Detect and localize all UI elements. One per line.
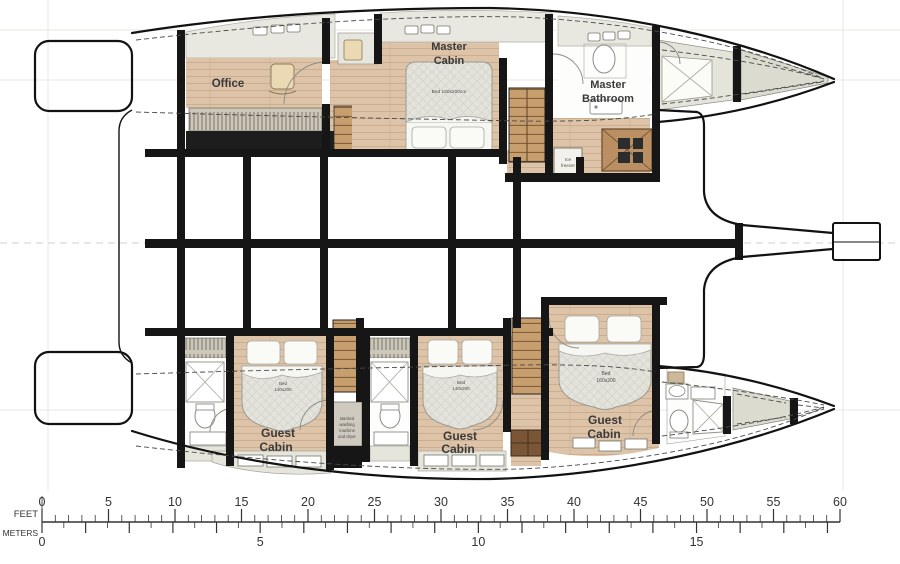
bulkhead xyxy=(362,336,370,462)
deck-hatch xyxy=(437,26,450,34)
bulkhead xyxy=(499,58,507,164)
aft-deck-edge xyxy=(119,110,132,363)
wardrobe xyxy=(368,338,410,358)
transom-step-top xyxy=(35,41,132,111)
ice-freezer-label-1: Ice xyxy=(565,157,572,162)
sink-counter xyxy=(374,432,408,445)
ice-freezer-label-2: freezer xyxy=(561,163,576,168)
bulkhead xyxy=(410,336,418,466)
master-bathroom-label-2: Bathroom xyxy=(582,93,634,105)
toilet xyxy=(670,410,688,432)
drawer xyxy=(573,438,595,448)
pillow xyxy=(607,316,641,342)
bulkhead xyxy=(374,14,382,64)
locker-box xyxy=(668,372,684,383)
sink xyxy=(593,45,615,73)
scale-tick-label: 15 xyxy=(690,535,704,549)
pillow xyxy=(428,340,458,364)
laundry-label-2: washing xyxy=(339,422,355,427)
scale-tick-label: 10 xyxy=(168,495,182,509)
room-guest-cabin-3: Bed 160x200 Guest Cabin xyxy=(549,305,659,456)
pillow xyxy=(412,127,446,148)
office-chair xyxy=(271,64,294,89)
trampoline-edge-bottom xyxy=(658,249,833,368)
bulkhead xyxy=(322,104,330,152)
beam-vertical xyxy=(320,157,328,328)
master-bed: Bed 160x200cm xyxy=(406,62,492,152)
office-label: Office xyxy=(212,78,245,90)
deck-hatch xyxy=(421,25,434,33)
scale-meters-title: METERS xyxy=(3,528,39,538)
bulkhead xyxy=(177,30,185,151)
scale-feet-title: FEET xyxy=(14,509,38,520)
bed-size-label-2b: 140x200 xyxy=(452,386,470,391)
bulkhead xyxy=(177,336,185,468)
drawer xyxy=(424,455,448,466)
pillow xyxy=(565,316,599,342)
drawer xyxy=(452,455,476,466)
wardrobe xyxy=(184,338,226,358)
master-bathroom-label-1: Master xyxy=(590,79,626,91)
laundry-label-4: and dryer xyxy=(338,434,356,439)
deck-hatch xyxy=(618,31,630,39)
scale-tick-label: 10 xyxy=(471,535,485,549)
beam-vertical xyxy=(448,157,456,328)
shelf xyxy=(691,387,715,399)
pillow xyxy=(247,341,280,364)
master-cabin-label-2: Cabin xyxy=(434,55,465,67)
toilet-tank xyxy=(196,404,214,410)
bulkhead xyxy=(226,336,234,466)
scale-bar: FEET METERS 0510152025303540455055600510… xyxy=(3,495,847,549)
scale-tick-label: 0 xyxy=(39,535,46,549)
bed-size-label-1b: 140x200 xyxy=(274,387,292,392)
shower-tray xyxy=(662,56,712,102)
bulkhead xyxy=(723,396,731,434)
office-top-cabinets xyxy=(186,14,335,58)
beam-horizontal-center xyxy=(145,239,739,248)
beam-vertical xyxy=(513,157,521,328)
closet-seat xyxy=(344,40,362,60)
scale-tick-label: 5 xyxy=(257,535,264,549)
bulkhead xyxy=(503,318,511,432)
drawer xyxy=(480,455,504,466)
room-guest-cabin-2: Bed 140x200 Guest Cabin xyxy=(418,336,506,471)
forepeak-locker-top xyxy=(741,50,828,100)
bed-size-label-3a: Bed xyxy=(602,371,611,377)
bulkhead xyxy=(733,46,741,102)
galley-nook: Ice freezer xyxy=(553,118,652,178)
scale-tick-label: 0 xyxy=(39,495,46,509)
office-floor xyxy=(186,58,322,108)
bed-size-label-3b: 160x200 xyxy=(596,378,615,384)
bed-size-label-1a: Bed xyxy=(279,381,288,386)
deck-hatch xyxy=(253,27,267,35)
bulkhead xyxy=(541,297,549,460)
scale-tick-label: 50 xyxy=(700,495,714,509)
beam-horizontal-fwd xyxy=(145,328,511,336)
scale-tick-label: 45 xyxy=(634,495,648,509)
grill-unit xyxy=(602,129,652,171)
sink-counter xyxy=(190,432,226,445)
bath-cabinet xyxy=(370,446,410,461)
scale-tick-label: 55 xyxy=(767,495,781,509)
deck-hatch xyxy=(603,32,615,40)
deck-hatch xyxy=(405,26,418,34)
sink xyxy=(669,386,685,397)
bulkhead xyxy=(545,14,553,174)
drawer xyxy=(599,441,621,451)
bulkhead xyxy=(326,336,334,470)
pillow xyxy=(284,341,317,364)
scale-tick-label: 15 xyxy=(235,495,249,509)
laundry-label-3: machine xyxy=(339,428,355,433)
bulkhead xyxy=(790,398,798,424)
scale-tick-label: 20 xyxy=(301,495,315,509)
stairs xyxy=(512,318,542,394)
forward-shower xyxy=(658,40,733,110)
cabin3-fwd-wall xyxy=(541,297,667,305)
drawer xyxy=(625,439,647,449)
crossbeam-end-wall xyxy=(735,223,743,260)
scale-tick-label: 35 xyxy=(501,495,515,509)
laundry-label-1: stacked xyxy=(340,416,355,421)
bulkhead xyxy=(322,18,330,64)
dresser xyxy=(511,430,545,456)
room-master-bathroom: Master Bathroom xyxy=(553,16,652,118)
forepeak-locker-bottom xyxy=(733,388,824,430)
guest-cabin-2-label-1: Guest xyxy=(443,429,477,443)
guest-cabin-1-label-1: Guest xyxy=(261,426,295,440)
bowsprit-plate xyxy=(833,223,880,260)
scale-tick-label: 40 xyxy=(567,495,581,509)
guest-cabin-2-label-2: Cabin xyxy=(441,442,474,456)
pillow xyxy=(462,340,492,364)
bulkhead xyxy=(652,302,660,444)
bulkhead xyxy=(652,26,660,182)
floor-plan-page: Office Bed 160x200cm Master Cabin xyxy=(0,0,900,564)
toilet-tank xyxy=(381,404,399,410)
master-cabin-label-1: Master xyxy=(431,41,467,53)
scale-tick-label: 60 xyxy=(833,495,847,509)
beam-vertical xyxy=(177,149,185,336)
master-bed-size-label: Bed 160x200cm xyxy=(432,89,467,95)
guest-cabin-1-label-2: Cabin xyxy=(259,440,292,454)
companionway-stairs-top xyxy=(507,88,545,173)
office-wardrobe xyxy=(189,108,322,131)
galley-aft-wall xyxy=(505,173,660,182)
bathroom-top-cabinets xyxy=(558,16,652,46)
beam-vertical xyxy=(243,157,251,328)
deck-hatch xyxy=(588,33,600,41)
pillow xyxy=(450,127,484,148)
bed-size-label-2a: Bed xyxy=(457,380,466,385)
scale-tick-label: 25 xyxy=(368,495,382,509)
office-black-locker xyxy=(186,131,336,152)
floor-plan-drawing: Office Bed 160x200cm Master Cabin xyxy=(0,0,900,564)
trampoline-edge-top xyxy=(658,110,833,233)
transom-step-bottom xyxy=(35,352,132,424)
faucet xyxy=(594,105,597,108)
scale-tick-label: 30 xyxy=(434,495,448,509)
guest-cabin-3-label-1: Guest xyxy=(588,413,622,427)
scale-tick-label: 5 xyxy=(105,495,112,509)
